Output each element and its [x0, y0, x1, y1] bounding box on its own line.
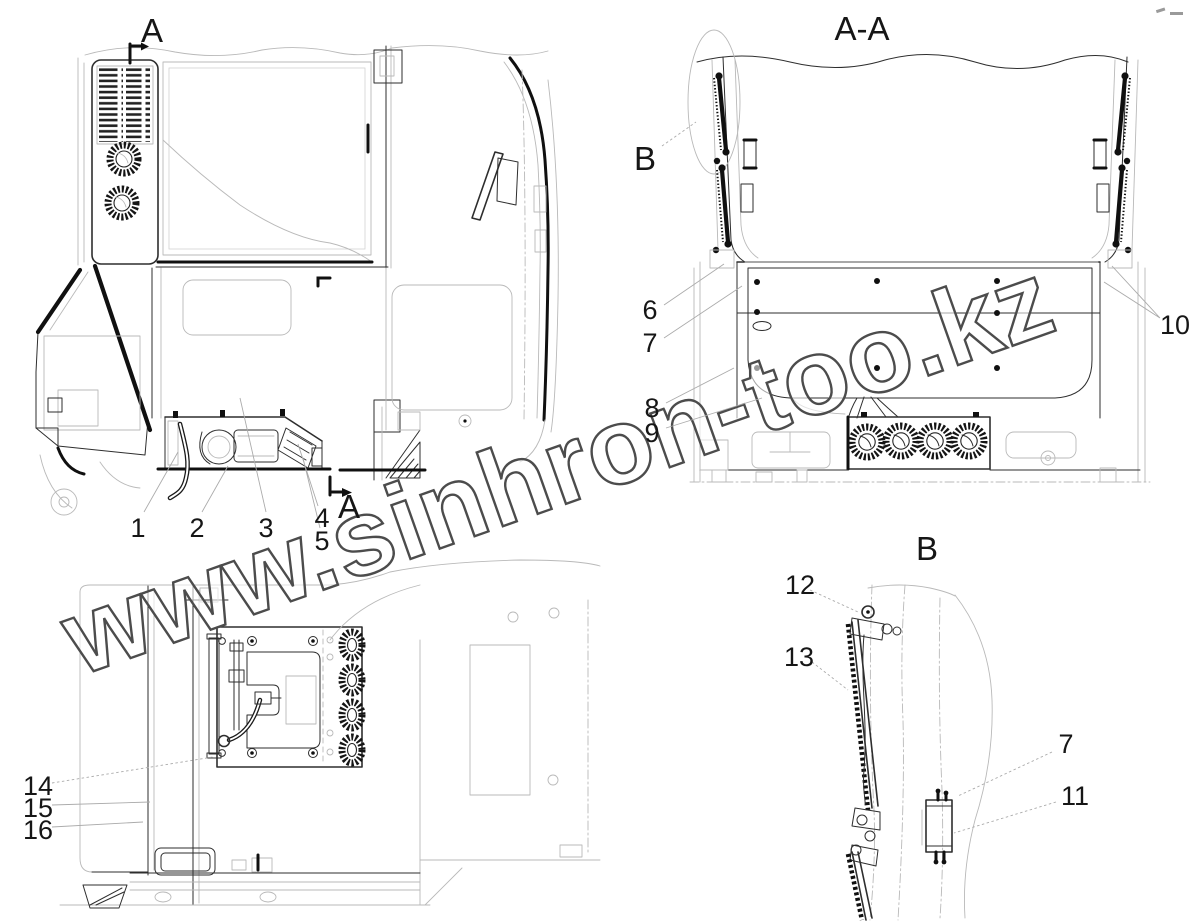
detail-b-title: B	[916, 530, 938, 567]
vent-column	[92, 60, 158, 264]
parts-diagram-canvas: www.sinhron-too.kz A A 1 2 3 4 5 A-A B 6…	[0, 0, 1200, 923]
heater-unit	[158, 409, 330, 498]
round-vent-icon	[342, 737, 362, 763]
callout-1: 1	[130, 513, 145, 543]
blower-fan-icon	[200, 430, 236, 464]
round-vent-icon	[920, 426, 950, 456]
round-vent-icon	[342, 632, 362, 658]
round-vent-icon	[852, 427, 882, 457]
callout-11: 11	[1061, 781, 1089, 811]
callout-7: 7	[642, 328, 657, 358]
left-heater-rail	[713, 72, 732, 253]
cab-door	[374, 46, 558, 462]
round-vent-icon	[954, 426, 984, 456]
callout-13: 13	[784, 642, 814, 672]
section-label-a-bottom: A	[338, 488, 360, 525]
round-vent-icon	[342, 702, 362, 728]
rear-base	[60, 845, 600, 908]
section-aa-title: A-A	[834, 10, 889, 47]
right-heater-rail	[1112, 72, 1131, 253]
heating-element-rail	[848, 606, 901, 920]
section-label-a-top: A	[141, 12, 163, 49]
callout-10: 10	[1160, 310, 1190, 340]
callout-7b: 7	[1058, 729, 1073, 759]
round-vent-icon	[110, 145, 138, 173]
callout-6: 6	[642, 295, 657, 325]
mounting-bracket	[922, 789, 952, 865]
callout-5: 5	[314, 526, 329, 556]
detail-b-drawing	[848, 585, 992, 920]
round-vent-icon	[342, 667, 362, 693]
heater-hose	[219, 692, 282, 747]
watermark-text: www.sinhron-too.kz	[46, 236, 1068, 698]
callout-16: 16	[23, 815, 53, 845]
hood	[36, 266, 150, 515]
detail-b-marker: B	[634, 140, 656, 177]
callout-2: 2	[189, 513, 204, 543]
callout-3: 3	[258, 513, 273, 543]
round-vent-icon	[886, 426, 916, 456]
callout-12: 12	[785, 570, 815, 600]
vent-strip	[342, 632, 362, 763]
callout-9: 9	[644, 418, 659, 448]
detail-b-boundary	[688, 30, 740, 174]
round-vent-icon	[108, 189, 136, 217]
corner-artifact	[1156, 8, 1183, 15]
door-handle	[472, 152, 546, 252]
